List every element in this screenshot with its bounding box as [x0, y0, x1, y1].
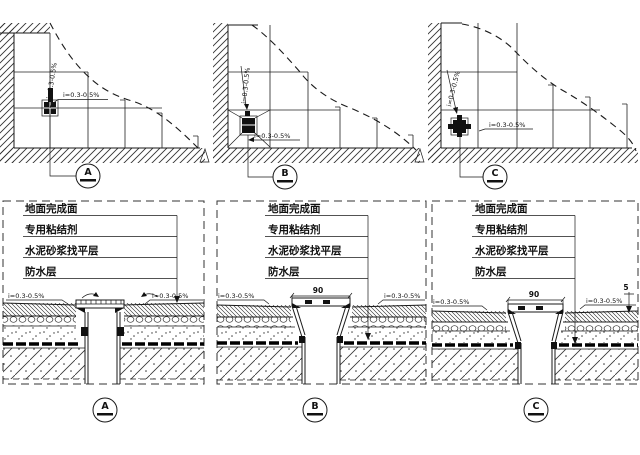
- wall-hatch-bottom: [213, 148, 420, 163]
- callout-leader: [50, 116, 76, 176]
- svg-text:i=0.3-0.5%: i=0.3-0.5%: [63, 91, 99, 99]
- material-label-2: 专用粘结剂: [475, 223, 528, 236]
- detail-callout-a: A: [76, 164, 100, 188]
- material-label-2: 专用粘结剂: [25, 223, 78, 236]
- slope-label-left: i=0.3-0.5%: [432, 298, 487, 310]
- slope-label-horizontal: i=0.3-0.5%: [52, 91, 108, 104]
- svg-text:i=0.3-0.5%: i=0.3-0.5%: [489, 121, 525, 129]
- panel-c-section: 地面完成面 专用粘结剂 水泥砂浆找平层 防水层 90 5 i=0.3-0.5% …: [432, 201, 638, 422]
- material-label-4: 防水层: [475, 265, 507, 278]
- svg-text:i=0.3-0.5%: i=0.3-0.5%: [152, 292, 188, 300]
- svg-text:i=0.3-0.5%: i=0.3-0.5%: [384, 292, 420, 300]
- slope-label-horizontal: i=0.3-0.5%: [479, 121, 533, 131]
- wall-hatch-left: [428, 23, 441, 163]
- panel-b-section: 地面完成面 专用粘结剂 水泥砂浆找平层 防水层 90 i=0.3-0.5% i=…: [217, 201, 426, 422]
- slope-label-left: i=0.3-0.5%: [217, 292, 269, 304]
- slope-label-left: i=0.3-0.5%: [6, 292, 68, 304]
- material-label-3: 水泥砂浆找平层: [474, 244, 549, 257]
- dimension-90: 90: [290, 286, 352, 304]
- floor-layers: [217, 305, 426, 380]
- svg-text:i=0.3-0.5%: i=0.3-0.5%: [8, 292, 44, 300]
- svg-text:i=0.3-0.5%: i=0.3-0.5%: [433, 298, 469, 306]
- section-callout-a: A: [93, 398, 117, 422]
- svg-text:i=0.3-0.5%: i=0.3-0.5%: [586, 297, 622, 305]
- panel-b-plan: i=0.3-0.5% i=0.3-0.5% B: [213, 23, 424, 189]
- svg-text:A: A: [84, 167, 92, 178]
- slope-label-vertical: i=0.3-0.5%: [240, 66, 252, 110]
- slope-label-right: i=0.3-0.5%: [145, 292, 203, 304]
- floor-layers: [432, 311, 638, 380]
- svg-text:90: 90: [529, 290, 539, 299]
- wall-hatch-bottom: [428, 148, 638, 163]
- slope-arrows: [82, 292, 158, 298]
- material-label-2: 专用粘结剂: [268, 223, 321, 236]
- material-label-4: 防水层: [268, 265, 300, 278]
- slope-label-horizontal: i=0.3-0.5%: [248, 132, 300, 142]
- material-label-1: 地面完成面: [25, 202, 78, 215]
- material-label-3: 水泥砂浆找平层: [24, 244, 99, 257]
- material-label-1: 地面完成面: [268, 202, 321, 215]
- wall-hatch-left: [213, 23, 228, 163]
- section-callout-b: B: [303, 398, 327, 422]
- svg-text:5: 5: [623, 283, 628, 292]
- tile-grid: [228, 25, 413, 148]
- dimension-90: 90: [506, 290, 565, 309]
- wall-hatch-left: [0, 23, 14, 163]
- svg-text:90: 90: [313, 286, 323, 295]
- slope-boundary-curve: [462, 24, 636, 151]
- slope-label-vertical: i=0.3-0.5%: [45, 62, 59, 99]
- slope-label-right: i=0.3-0.5%: [378, 292, 425, 304]
- svg-text:C: C: [533, 401, 540, 412]
- dimension-5: 5: [623, 283, 634, 313]
- svg-text:A: A: [101, 401, 109, 412]
- panel-a-plan: i=0.3-0.5% i=0.3-0.5% A: [0, 23, 209, 188]
- material-callout-ladder: 地面完成面 专用粘结剂 水泥砂浆找平层 防水层: [23, 202, 180, 303]
- slope-label-vertical: i=0.3-0.5%: [445, 70, 462, 114]
- svg-text:i=0.3-0.5%: i=0.3-0.5%: [218, 292, 254, 300]
- material-label-3: 水泥砂浆找平层: [267, 244, 342, 257]
- floor-layers: [3, 303, 204, 379]
- panel-a-section: 地面完成面 专用粘结剂 水泥砂浆找平层 防水层 i=0.3-0.5% i=0.3…: [3, 201, 204, 422]
- svg-text:i=0.3-0.5%: i=0.3-0.5%: [254, 132, 290, 140]
- detail-callout-c: C: [483, 165, 507, 189]
- material-label-1: 地面完成面: [475, 202, 528, 215]
- svg-text:B: B: [281, 168, 288, 179]
- material-label-4: 防水层: [25, 265, 57, 278]
- floor-drain-symbol-c: [448, 115, 471, 137]
- tile-grid: [441, 23, 627, 148]
- detail-callout-b: B: [273, 165, 297, 189]
- section-callout-c: C: [524, 398, 548, 422]
- svg-text:B: B: [311, 401, 318, 412]
- drawing-canvas: i=0.3-0.5% i=0.3-0.5% A: [0, 0, 640, 455]
- svg-text:C: C: [492, 168, 499, 179]
- svg-text:i=0.3-0.5%: i=0.3-0.5%: [445, 70, 462, 107]
- wall-hatch-bottom: [0, 148, 205, 163]
- slope-boundary-curve: [50, 23, 198, 148]
- panel-c-plan: i=0.3-0.5% i=0.3-0.5% C: [428, 23, 638, 189]
